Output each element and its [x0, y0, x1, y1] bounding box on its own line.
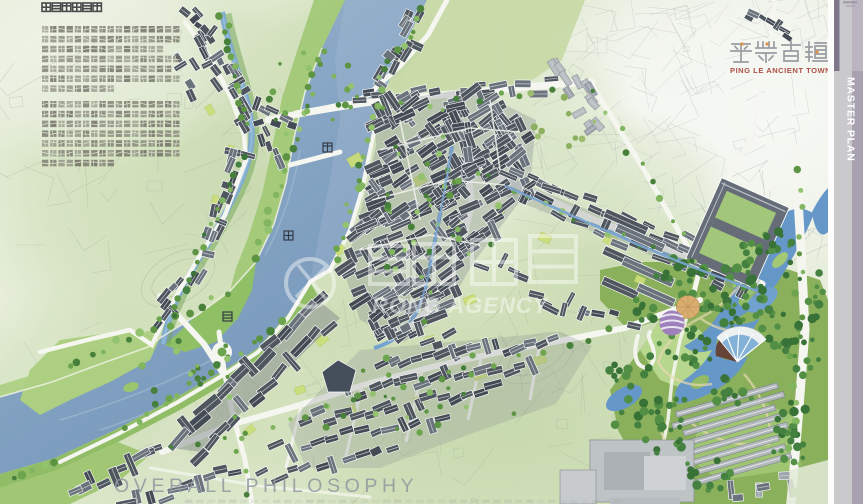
svg-text:MASTER PLAN: MASTER PLAN: [845, 77, 857, 162]
